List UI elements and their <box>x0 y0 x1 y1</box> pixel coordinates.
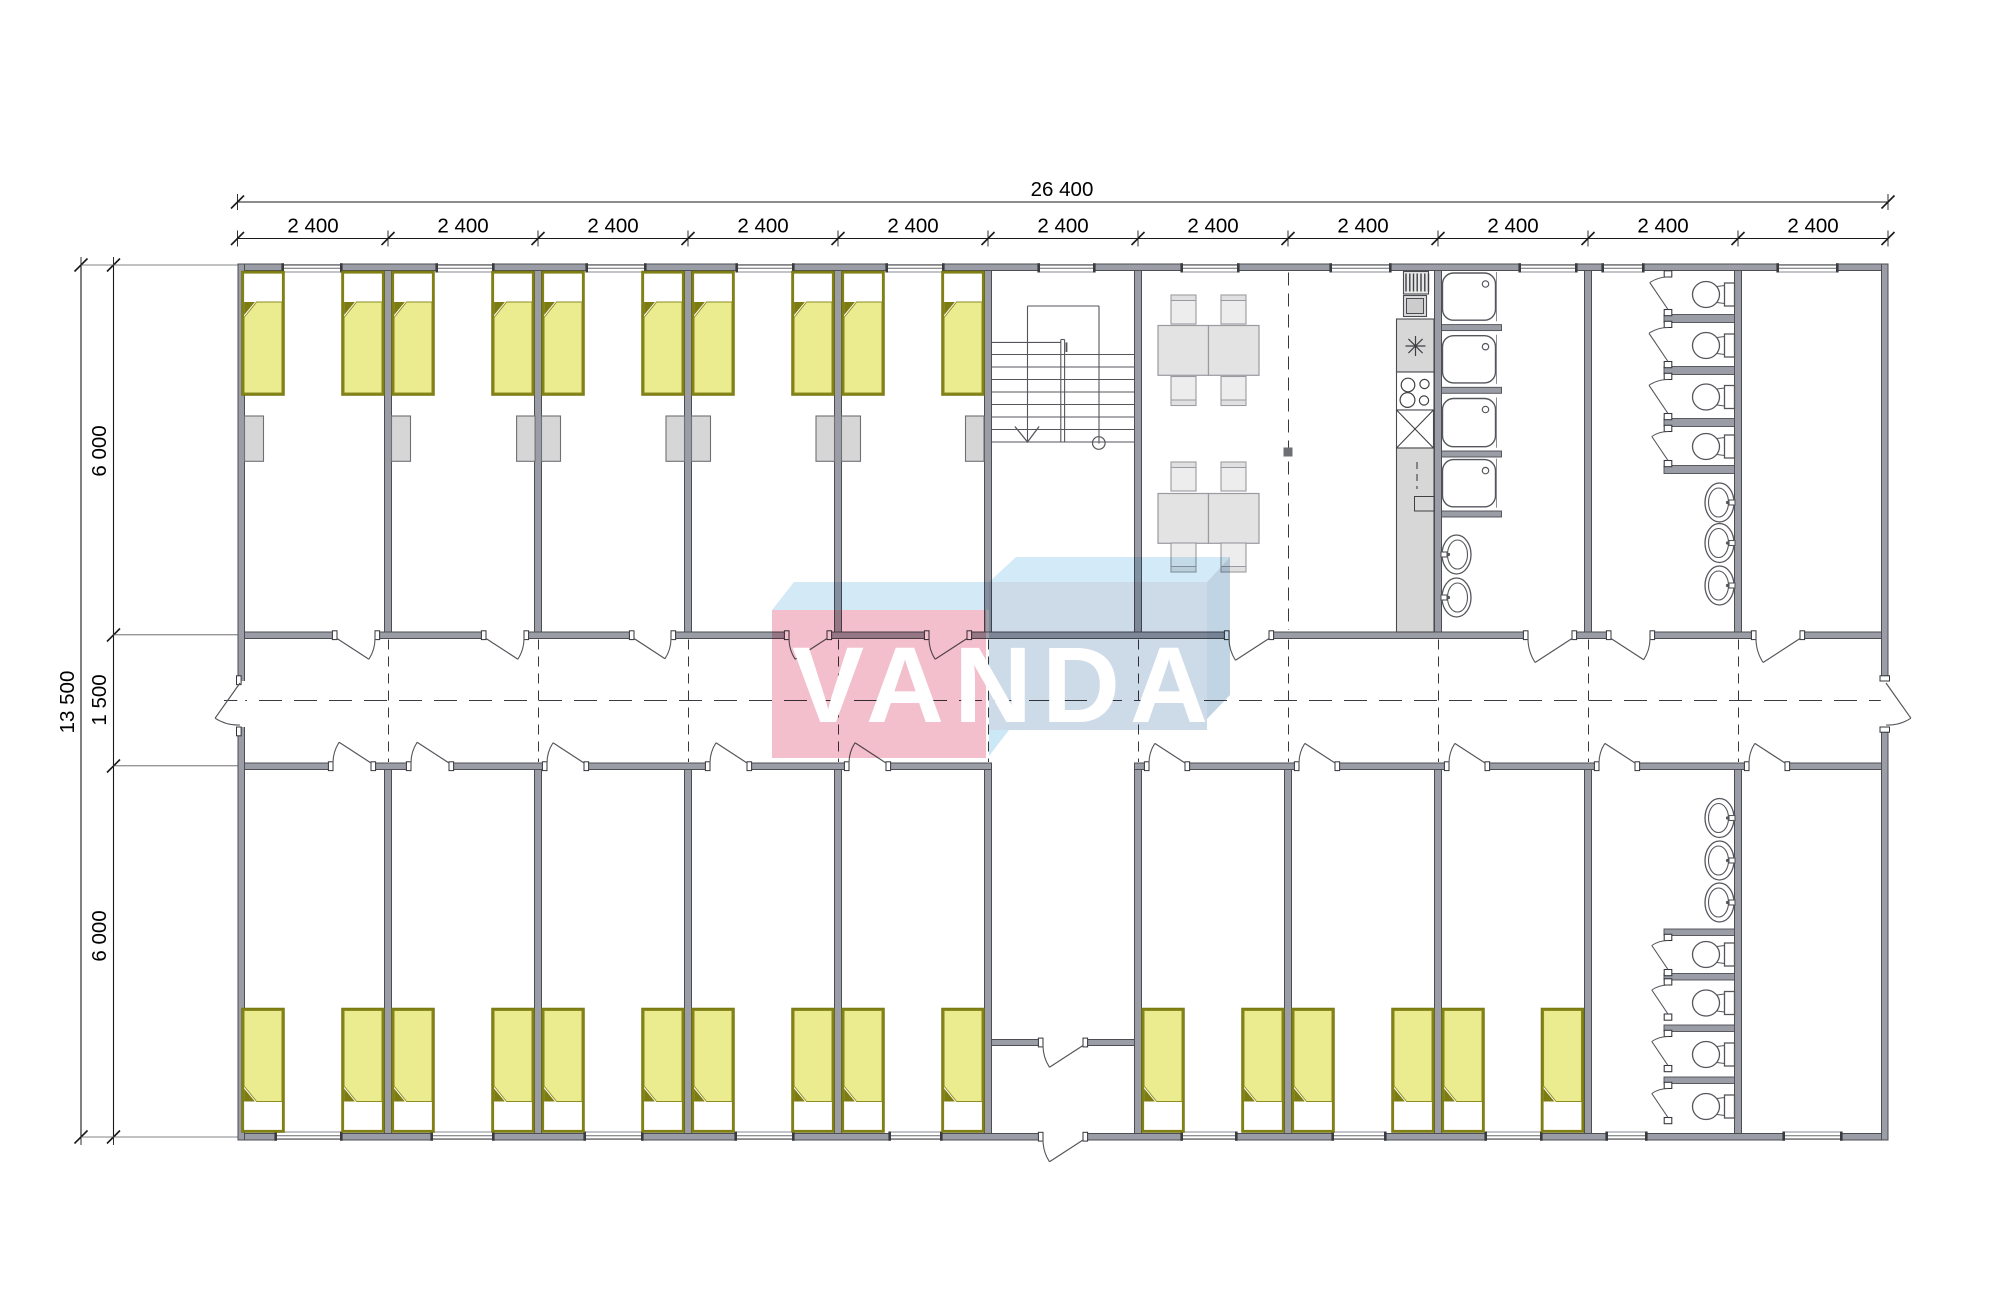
svg-text:2 400: 2 400 <box>737 215 788 238</box>
svg-text:13 500: 13 500 <box>56 671 79 734</box>
svg-text:6 000: 6 000 <box>88 910 111 961</box>
svg-text:2 400: 2 400 <box>1787 215 1838 238</box>
svg-text:2 400: 2 400 <box>437 215 488 238</box>
svg-text:2 400: 2 400 <box>587 215 638 238</box>
svg-text:2 400: 2 400 <box>1637 215 1688 238</box>
svg-text:2 400: 2 400 <box>887 215 938 238</box>
svg-text:6 000: 6 000 <box>88 425 111 476</box>
svg-text:2 400: 2 400 <box>1337 215 1388 238</box>
svg-text:26 400: 26 400 <box>1031 178 1094 201</box>
svg-text:VANDA: VANDA <box>792 624 1218 745</box>
svg-text:2 400: 2 400 <box>1187 215 1238 238</box>
svg-text:2 400: 2 400 <box>1037 215 1088 238</box>
svg-text:2 400: 2 400 <box>287 215 338 238</box>
svg-text:2 400: 2 400 <box>1487 215 1538 238</box>
svg-text:1 500: 1 500 <box>88 674 111 725</box>
